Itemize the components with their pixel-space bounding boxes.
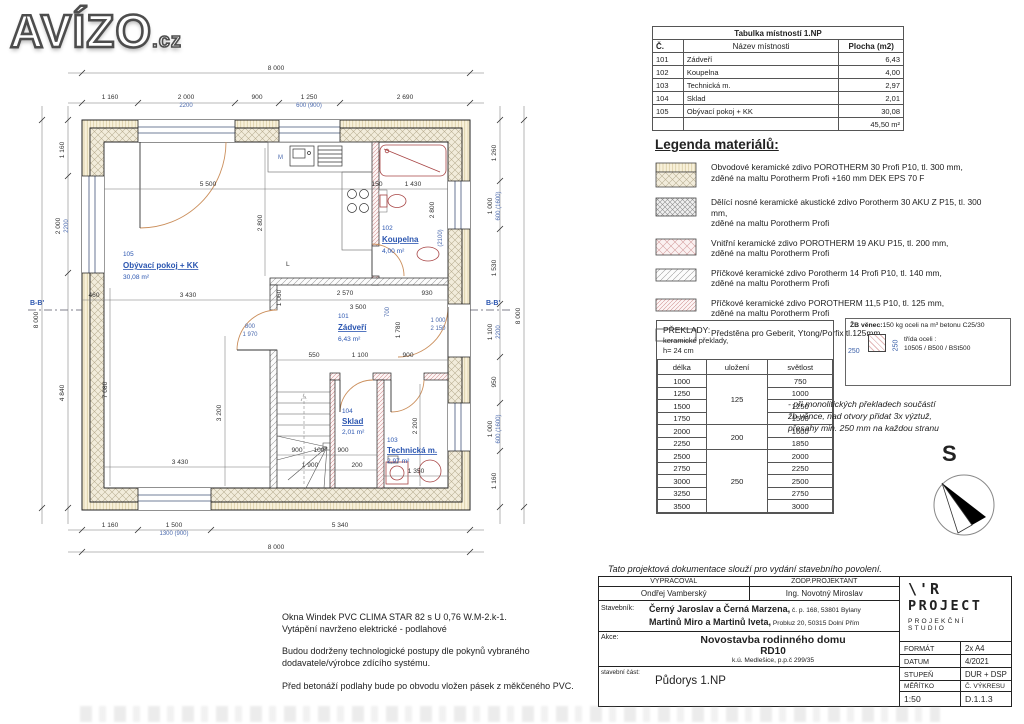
svg-text:1 100: 1 100 xyxy=(487,323,494,340)
svg-text:2200: 2200 xyxy=(179,103,193,109)
svg-text:8 000: 8 000 xyxy=(268,544,285,551)
svg-text:600 (900): 600 (900) xyxy=(296,103,322,109)
room-table-header-area: Plocha (m2) xyxy=(839,40,904,53)
room-name-tech: Technická m. xyxy=(387,446,437,455)
svg-text:1 160: 1 160 xyxy=(102,94,119,101)
room-table-title: Tabulka místností 1.NP xyxy=(653,27,904,40)
room-no: 105 xyxy=(653,105,684,118)
svg-text:2 800: 2 800 xyxy=(257,214,264,231)
svg-text:1 900: 1 900 xyxy=(302,462,319,469)
legend-item: Příčkové keramické zdivo POROTHERM 11,5 … xyxy=(655,298,995,319)
table-row: 103Technická m.2,97 xyxy=(653,79,904,92)
svg-text:900: 900 xyxy=(402,352,413,359)
meritko-label: MĚŘÍTKO xyxy=(900,681,961,691)
room-table-header-number: Č. xyxy=(653,40,684,53)
section-label-left: B-B' xyxy=(30,300,44,307)
zodp-name: Ing. Novotný Miroslav xyxy=(750,587,900,600)
floor-plan: B-B' B-B' 8 000 1 160 2 000 2200 900 1 2… xyxy=(28,58,548,560)
svg-text:700: 700 xyxy=(385,306,391,317)
stavebnik-label: Stavebník: xyxy=(601,603,649,629)
col-ulozeni: uložení xyxy=(706,360,768,375)
room-name: Sklad xyxy=(683,92,839,105)
format-value: 2x A4 xyxy=(961,642,1011,654)
svg-text:1 160: 1 160 xyxy=(59,141,66,158)
room-no: 101 xyxy=(653,53,684,66)
room-name: Zádveří xyxy=(683,53,839,66)
room-area: 2,01 xyxy=(839,92,904,105)
appliance-mark-l: L xyxy=(286,261,290,268)
zb-section xyxy=(868,334,886,352)
avizo-logo[interactable]: AVÍZO.cz xyxy=(10,4,182,58)
room-number-tech: 103 xyxy=(387,437,398,444)
zb-title: ŽB věnec: xyxy=(850,322,882,329)
svg-text:1 500: 1 500 xyxy=(166,522,183,529)
svg-text:950: 950 xyxy=(491,376,498,387)
svg-text:2 200: 2 200 xyxy=(412,417,419,434)
title-block: Tato projektová dokumentace slouží pro v… xyxy=(598,564,1012,707)
rc-ring-beam-box: ŽB věnec:150 kg oceli na m³ betonu C25/3… xyxy=(845,318,1011,386)
svg-text:1 430: 1 430 xyxy=(405,181,422,188)
room-name-bath: Koupelna xyxy=(382,235,419,244)
svg-text:800: 800 xyxy=(245,324,256,330)
legend-item: Vnitřní keramické zdivo POROTHERM 19 AKU… xyxy=(655,238,995,259)
construction-notes: Okna Windek PVC CLIMA STAR 82 s U 0,76 W… xyxy=(282,612,602,703)
lintel-table-title: PŘEKLADY: xyxy=(657,321,833,336)
lintel-note: - při monolitických překladech součástí … xyxy=(788,398,1008,434)
room-name: Technická m. xyxy=(683,79,839,92)
akce-content: Novostavba rodinného domu RD10 k.ú. Medl… xyxy=(649,634,897,664)
svg-text:3 430: 3 430 xyxy=(180,292,197,299)
svg-text:3 200: 3 200 xyxy=(216,404,223,421)
room-number-storage: 104 xyxy=(342,408,353,415)
cutoff-text-strip xyxy=(80,706,940,722)
svg-text:900: 900 xyxy=(291,447,302,454)
svg-text:8 000: 8 000 xyxy=(515,307,522,324)
hatch-swatch-partition-115 xyxy=(655,298,697,312)
akce-label: Akce: xyxy=(601,634,649,664)
hatch-swatch-exterior-wall xyxy=(655,162,697,188)
stupen-label: STUPEŇ xyxy=(900,668,961,680)
north-label: S xyxy=(942,441,1008,467)
svg-text:8 000: 8 000 xyxy=(268,65,285,72)
room-number-bath: 102 xyxy=(382,225,393,232)
room-area-hall: 6,43 m² xyxy=(338,336,361,343)
datum-label: DATUM xyxy=(900,655,961,667)
table-row: 104Sklad2,01 xyxy=(653,92,904,105)
svg-text:2 000: 2 000 xyxy=(178,94,195,101)
stairs xyxy=(277,392,330,488)
svg-text:1 160: 1 160 xyxy=(102,522,119,529)
svg-text:1 000: 1 000 xyxy=(430,318,446,324)
zb-sketch: 250 250 xyxy=(850,332,904,370)
svg-text:1 000: 1 000 xyxy=(487,197,494,214)
room-area: 30,08 xyxy=(839,105,904,118)
vr-project-logo: \'R PROJECT PROJEKČNÍ STUDIO xyxy=(900,577,1011,642)
room-area: 2,97 xyxy=(839,79,904,92)
svg-text:1 350: 1 350 xyxy=(408,468,425,475)
hatch-swatch-partition-14 xyxy=(655,268,697,282)
svg-text:1 250: 1 250 xyxy=(301,94,318,101)
svg-text:1 970: 1 970 xyxy=(242,332,258,338)
svg-text:2 000: 2 000 xyxy=(55,217,62,234)
legend-title: Legenda materiálů: xyxy=(655,137,995,152)
room-area-tech: 2,97 m² xyxy=(387,458,410,465)
doors xyxy=(140,142,448,412)
room-table-header-name: Název místnosti xyxy=(683,40,839,53)
room-name: Koupelna xyxy=(683,66,839,79)
svg-text:1 530: 1 530 xyxy=(491,259,498,276)
svg-text:1 100: 1 100 xyxy=(352,352,369,359)
room-area-bath: 4,00 m² xyxy=(382,248,405,255)
room-name-living: Obývací pokoj + KK xyxy=(123,261,199,270)
svg-text:200: 200 xyxy=(351,462,362,469)
hatch-swatch-aku-wall xyxy=(655,197,697,217)
room-no: 104 xyxy=(653,92,684,105)
svg-text:1 000: 1 000 xyxy=(487,420,494,437)
svg-text:1300 (900): 1300 (900) xyxy=(159,531,188,537)
vypracoval-label: VYPRACOVAL xyxy=(599,577,750,586)
svg-text:5 500: 5 500 xyxy=(200,181,217,188)
legend-item: Příčkové keramické zdivo Porotherm 14 Pr… xyxy=(655,268,995,289)
svg-text:930: 930 xyxy=(421,290,432,297)
zodp-label: ZODP.PROJEKTANT xyxy=(750,577,900,586)
room-area: 4,00 xyxy=(839,66,904,79)
svg-text:550: 550 xyxy=(308,352,319,359)
svg-text:900: 900 xyxy=(251,94,262,101)
vykres-value: D.1.1.3 xyxy=(961,692,1011,706)
hatch-swatch-interior-wall xyxy=(655,238,697,256)
svg-text:900: 900 xyxy=(337,447,348,454)
svg-text:600 (1600): 600 (1600) xyxy=(496,191,502,220)
svg-text:150: 150 xyxy=(371,181,382,188)
room-name: Obývací pokoj + KK xyxy=(683,105,839,118)
svg-text:(2100): (2100) xyxy=(438,229,444,246)
zb-dim-height: 250 xyxy=(892,340,899,352)
stupen-value: DUR + DSP xyxy=(961,668,1011,680)
table-row: 101Zádveří6,43 xyxy=(653,53,904,66)
svg-text:1 060: 1 060 xyxy=(276,289,283,306)
compass-icon xyxy=(928,467,1000,539)
legend-item: Obvodové keramické zdivo POROTHERM 30 Pr… xyxy=(655,162,995,188)
svg-text:5 340: 5 340 xyxy=(332,522,349,529)
vypracoval-name: Ondřej Vamberský xyxy=(599,587,750,600)
svg-text:2200: 2200 xyxy=(496,325,502,339)
meritko-value: 1:50 xyxy=(900,692,961,706)
svg-text:460: 460 xyxy=(88,292,99,299)
svg-text:1 160: 1 160 xyxy=(491,472,498,489)
svg-text:2 150: 2 150 xyxy=(430,326,446,332)
permit-note: Tato projektová dokumentace slouží pro v… xyxy=(608,564,1012,574)
table-row: 105Obývací pokoj + KK30,08 xyxy=(653,105,904,118)
svg-text:2 690: 2 690 xyxy=(397,94,414,101)
svg-text:3 430: 3 430 xyxy=(172,459,189,466)
svg-text:4 840: 4 840 xyxy=(59,384,66,401)
room-no: 102 xyxy=(653,66,684,79)
table-row-total: 45,50 m² xyxy=(653,118,904,131)
room-number-hall: 101 xyxy=(338,313,349,320)
svg-text:7 080: 7 080 xyxy=(102,381,109,398)
avizo-logo-suffix: .cz xyxy=(152,30,182,52)
zb-dim-width: 250 xyxy=(848,348,860,355)
drawing-name: Půdorys 1.NP xyxy=(649,669,726,687)
svg-text:1 780: 1 780 xyxy=(395,321,402,338)
col-delka: délka xyxy=(658,360,707,375)
room-name-hall: Zádveří xyxy=(338,323,367,332)
stavebnik-names: Černý Jaroslav a Černá Marzena, č. p. 16… xyxy=(649,603,861,629)
room-name-storage: Sklad xyxy=(342,417,363,426)
room-table: Tabulka místností 1.NP Č. Název místnost… xyxy=(652,26,904,131)
svg-text:600 (1600): 600 (1600) xyxy=(496,414,502,443)
svg-text:100: 100 xyxy=(313,447,324,454)
room-area-total: 45,50 m² xyxy=(839,118,904,131)
room-number-living: 105 xyxy=(123,251,134,258)
room-area-storage: 2,01 m² xyxy=(342,429,365,436)
avizo-logo-text: AVÍZO xyxy=(10,5,152,57)
legend-text: Obvodové keramické zdivo POROTHERM 30 Pr… xyxy=(711,162,963,172)
room-no: 103 xyxy=(653,79,684,92)
legend-item: Dělící nosné keramické akustické zdivo P… xyxy=(655,197,995,229)
north-arrow: S xyxy=(928,441,1008,544)
table-row: 102Koupelna4,00 xyxy=(653,66,904,79)
svg-text:8 000: 8 000 xyxy=(33,311,40,328)
svg-text:3 500: 3 500 xyxy=(350,304,367,311)
appliance-mark-m: M xyxy=(278,155,283,161)
room-area: 6,43 xyxy=(839,53,904,66)
svg-text:2 800: 2 800 xyxy=(429,201,436,218)
vykres-label: Č. VÝKRESU xyxy=(961,681,1011,691)
kitchen-appliances xyxy=(290,146,369,213)
datum-value: 4/2021 xyxy=(961,655,1011,667)
format-label: FORMÁT xyxy=(900,642,961,654)
col-svetlost: světlost xyxy=(768,360,833,375)
room-area-living: 30,08 m² xyxy=(123,274,150,281)
svg-text:1 260: 1 260 xyxy=(491,144,498,161)
cast-label: stavební část: xyxy=(601,669,649,687)
svg-text:2 570: 2 570 xyxy=(337,290,354,297)
svg-text:2200: 2200 xyxy=(64,219,70,233)
